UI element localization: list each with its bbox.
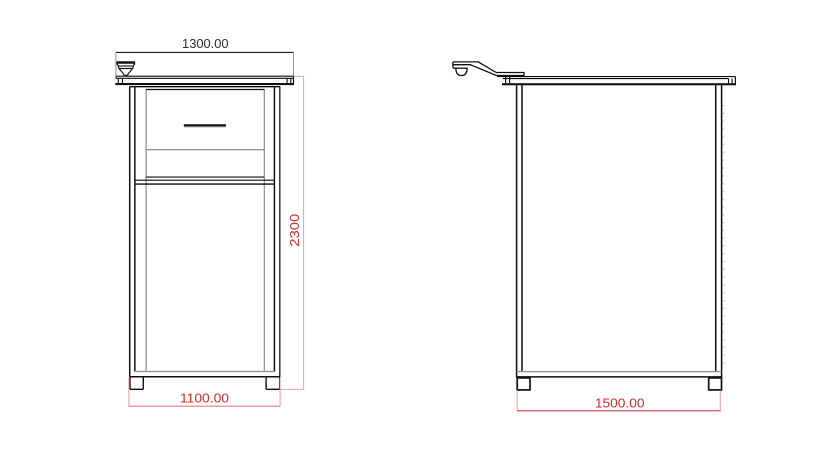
svg-text:1100.00: 1100.00 <box>180 391 229 406</box>
svg-text:1500.00: 1500.00 <box>595 395 645 410</box>
svg-text:2300: 2300 <box>287 214 302 247</box>
svg-text:1300.00: 1300.00 <box>182 36 229 51</box>
